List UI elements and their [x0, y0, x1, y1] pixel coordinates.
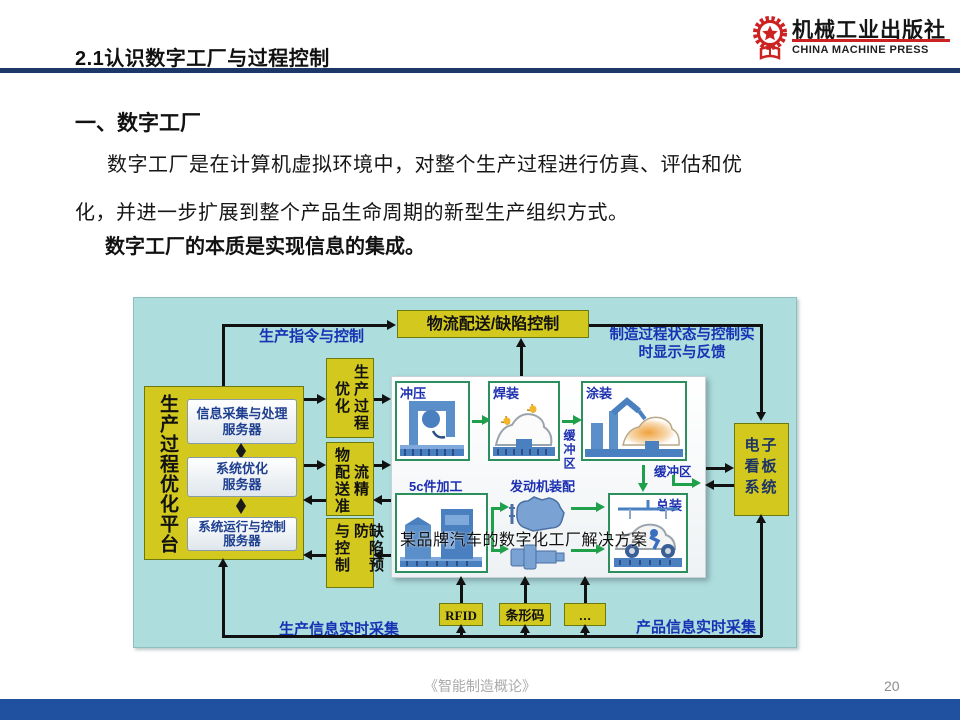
server1-line1: 信息采集与处理	[188, 406, 296, 422]
midbox1-col-left: 优化	[334, 381, 349, 415]
header-divider	[0, 68, 960, 73]
green-arrowhead	[500, 502, 509, 512]
status-feedback-line2: 时显示与反馈	[594, 344, 770, 362]
arrowhead	[580, 576, 590, 585]
defect-prevention-control-box: 与控制 缺陷预防	[326, 518, 374, 588]
arrowhead	[456, 576, 466, 585]
arrowhead	[516, 338, 526, 347]
green-arrow	[571, 507, 599, 510]
diagram-caption: 某品牌汽车的数字化工厂解决方案	[400, 526, 648, 550]
stamping-press-graphic	[397, 397, 468, 459]
production-process-optimization-box: 优化 生产过程	[326, 358, 374, 438]
engine-assembly-label: 发动机装配	[510, 476, 575, 495]
arrowhead	[373, 550, 382, 560]
car-factory-process-panel: 冲压 焊装	[391, 376, 706, 578]
midbox2-col-right: 流精	[353, 464, 368, 498]
system-optimization-server-box: 系统优化 服务器	[187, 457, 297, 497]
production-process-optimization-platform: 生产过程优化平台 信息采集与处理 服务器 系统优化 服务器 系统运行与控制 服务…	[144, 386, 304, 560]
arrowhead	[725, 463, 734, 473]
platform-label: 生产过程优化平台	[156, 394, 178, 558]
more-box: …	[564, 603, 606, 626]
logistics-defect-control-box: 物流配送/缺陷控制	[397, 310, 589, 338]
connector-line	[222, 635, 762, 638]
green-arrowhead	[596, 502, 605, 512]
publisher-name-en: CHINA MACHINE PRESS	[792, 44, 929, 56]
arrowhead	[317, 394, 326, 404]
server3-line2: 服务器	[188, 534, 296, 548]
bottom-blue-bar	[0, 699, 960, 720]
painting-robot-graphic	[583, 397, 685, 459]
product-info-collection-label: 产品信息实时采集	[636, 616, 756, 637]
arrowhead	[382, 460, 391, 470]
logo-red-underline	[792, 39, 950, 42]
arrowhead	[382, 394, 391, 404]
rfid-box: RFID	[439, 603, 483, 626]
system-operation-control-server-box: 系统运行与控制 服务器	[187, 517, 297, 551]
midbox2-col-left: 物配送准	[334, 447, 349, 515]
arrowhead	[373, 495, 382, 505]
status-feedback-label: 制造过程状态与控制实 时显示与反馈	[594, 326, 770, 362]
arrowhead	[756, 514, 766, 523]
section-heading: 一、数字工厂	[75, 107, 201, 137]
arrowhead	[520, 576, 530, 585]
server2-line1: 系统优化	[188, 461, 296, 477]
arrowhead	[456, 624, 466, 633]
connector-line	[311, 554, 326, 557]
server2-line2: 服务器	[188, 477, 296, 493]
arrowhead	[218, 558, 228, 567]
connector-line	[222, 324, 389, 327]
green-arrowhead	[692, 478, 701, 488]
midbox1-col-right: 生产过程	[353, 364, 368, 432]
electronic-kanban-system-box: 电子看板系统	[734, 423, 789, 516]
page-title: 2.1认识数字工厂与过程控制	[75, 42, 330, 71]
arrowhead	[303, 550, 312, 560]
server3-line1: 系统运行与控制	[188, 520, 296, 534]
painting-station-box: 涂装	[581, 381, 687, 461]
arrowhead	[756, 412, 766, 421]
connector-line	[760, 520, 763, 637]
kanban-label: 电子看板系统	[745, 435, 779, 498]
paragraph-line-2: 化，并进一步扩展到整个产品生命周期的新型生产组织方式。	[75, 196, 629, 225]
production-command-label: 生产指令与控制	[259, 325, 364, 346]
double-arrow-connector	[234, 498, 248, 514]
buffer-zone-vertical-label: 缓冲区	[561, 429, 578, 471]
page-number: 20	[884, 678, 900, 694]
welding-station-box: 焊装	[488, 381, 560, 461]
arrowhead	[317, 460, 326, 470]
green-arrowhead	[638, 483, 648, 492]
arrowhead	[520, 624, 530, 633]
connector-line	[222, 564, 225, 637]
welding-car-body-graphic	[490, 397, 558, 459]
stamping-station-box: 冲压	[395, 381, 470, 461]
connector-line	[381, 499, 391, 502]
footer-book-title: 《智能制造概论》	[0, 676, 960, 696]
connector-line	[520, 344, 523, 376]
connector-line	[589, 324, 762, 327]
arrowhead	[705, 480, 714, 490]
arrowhead	[580, 624, 590, 633]
connector-line	[712, 484, 734, 487]
arrowhead	[303, 495, 312, 505]
paragraph-line-1: 数字工厂是在计算机虚拟环境中，对整个生产过程进行仿真、评估和优	[107, 148, 743, 177]
gear-star-logo-icon	[750, 15, 790, 61]
logistics-precision-box: 物配送准 流精	[326, 442, 374, 516]
status-feedback-line1: 制造过程状态与控制实	[594, 326, 770, 344]
connector-line	[760, 324, 763, 414]
arrowhead	[387, 320, 396, 330]
connector-line	[381, 554, 391, 557]
green-elbow	[672, 483, 694, 486]
connector-line	[311, 499, 326, 502]
barcode-box: 条形码	[499, 603, 551, 626]
emphasis-sentence: 数字工厂的本质是实现信息的集成。	[105, 230, 425, 259]
green-arrow	[642, 465, 645, 485]
digital-factory-diagram: 物流配送/缺陷控制 生产指令与控制 制造过程状态与控制实 时显示与反馈 生产过程…	[133, 297, 797, 648]
connector-line	[222, 324, 225, 386]
midbox3-col-left: 与控制	[334, 523, 349, 574]
server1-line2: 服务器	[188, 422, 296, 438]
info-collection-server-box: 信息采集与处理 服务器	[187, 399, 297, 444]
